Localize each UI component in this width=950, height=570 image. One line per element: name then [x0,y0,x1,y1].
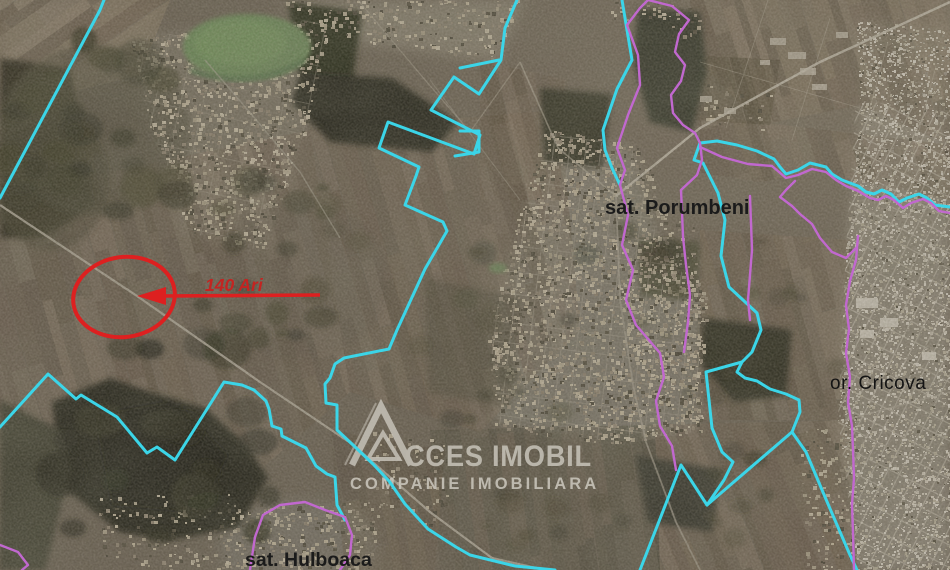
svg-text:sat. Porumbeni: sat. Porumbeni [605,197,749,219]
svg-text:CCES IMOBIL: CCES IMOBIL [405,440,592,473]
svg-text:140 Ari: 140 Ari [205,275,264,295]
svg-text:sat. Hulboaca: sat. Hulboaca [245,549,372,570]
svg-text:or. Cricova: or. Cricova [830,373,926,394]
